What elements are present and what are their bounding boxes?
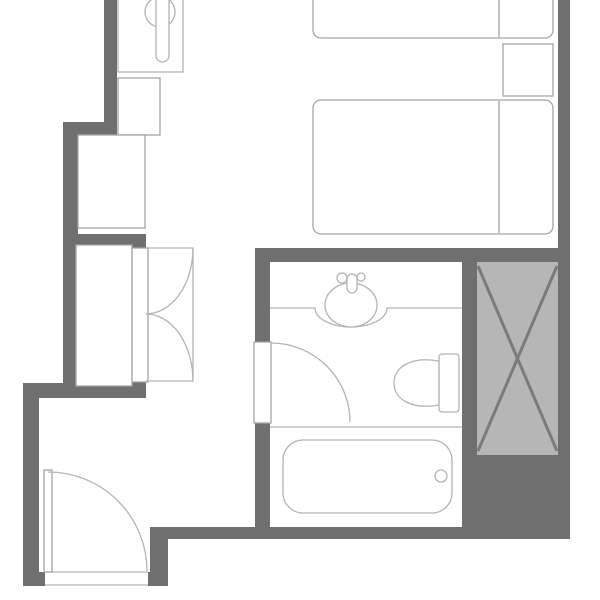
wall-under-shaft: [462, 455, 570, 539]
wall-top-left-vertical: [104, 0, 117, 135]
bed-2: [313, 100, 553, 234]
cabinet-lower: [78, 135, 145, 228]
wall-bedroom-bottom: [255, 248, 570, 262]
bed-1: [313, 0, 553, 38]
entry-door-arc: [48, 472, 147, 571]
closet-panel: [132, 248, 148, 382]
closet-door-arc-upper: [146, 248, 193, 314]
wall-bathroom-right: [462, 262, 477, 455]
wall-left-lower: [23, 383, 39, 586]
wall-right-outer: [558, 0, 570, 455]
wall-entry-left-stub: [23, 572, 45, 586]
cabinet-upper: [118, 78, 160, 135]
bathroom-door-arc: [271, 343, 350, 422]
toilet-tank: [439, 354, 459, 412]
wall-bathroom-left-upper: [255, 248, 270, 343]
faucet-handle: [347, 274, 357, 293]
wall-bathroom-left-lower: [255, 422, 270, 527]
faucet-knob-left: [337, 273, 347, 283]
floor-plan: [0, 0, 600, 600]
closet-door-arc-lower: [146, 314, 193, 381]
bathtub-drain: [435, 470, 447, 482]
utility-fixture-handle: [156, 0, 169, 62]
faucet-knob-right: [357, 273, 365, 281]
bathtub: [283, 440, 452, 513]
wall-entry-step: [150, 527, 168, 586]
entry-door-leaf: [44, 470, 52, 572]
toilet-bowl: [394, 360, 439, 406]
bathroom-door-leaf: [254, 342, 271, 423]
closet-box: [76, 245, 132, 386]
nightstand: [503, 44, 553, 96]
floor-plan-canvas: [0, 0, 600, 600]
